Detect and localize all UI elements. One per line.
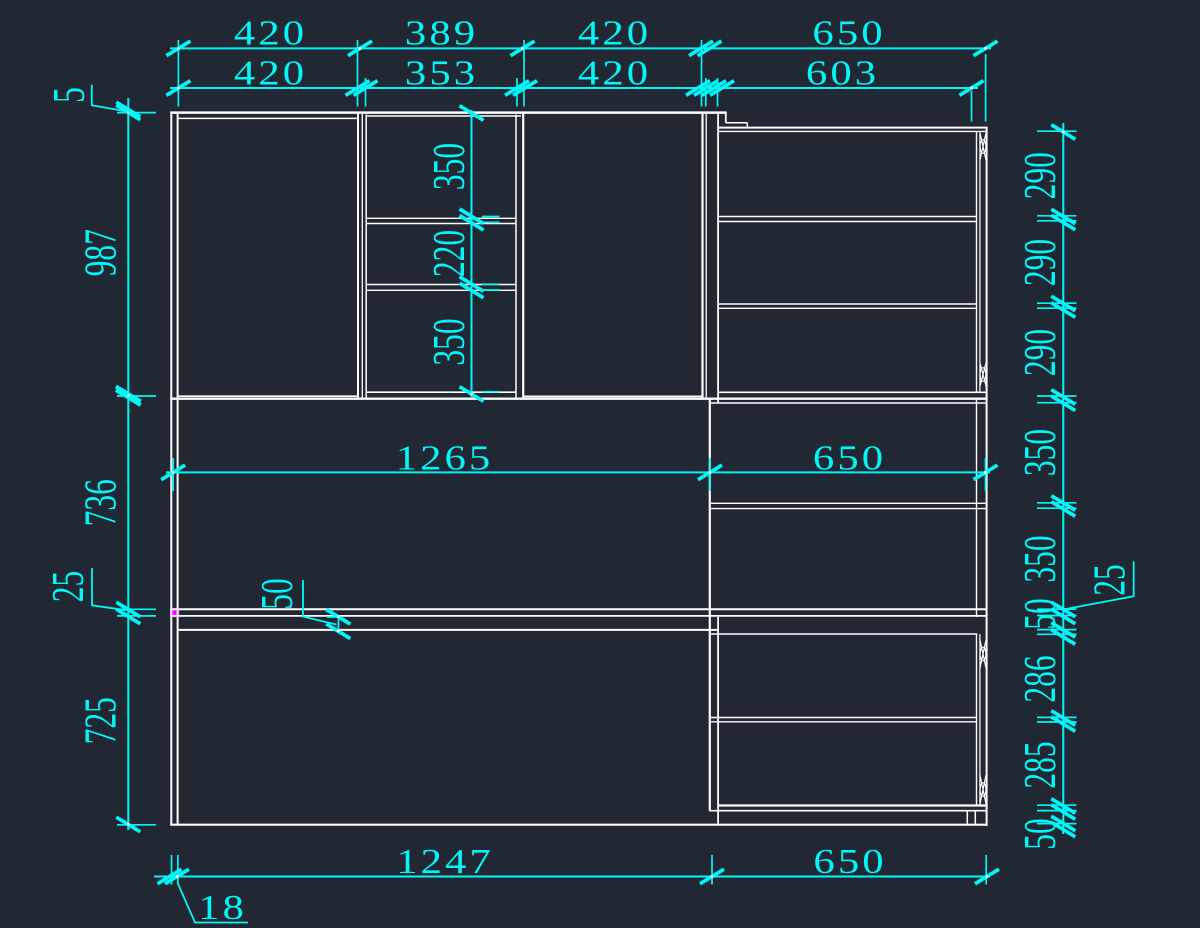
svg-text:350: 350 — [423, 318, 474, 365]
svg-text:50: 50 — [1014, 598, 1065, 629]
svg-text:420: 420 — [578, 14, 651, 53]
svg-text:285: 285 — [1014, 741, 1065, 788]
svg-text:389: 389 — [405, 14, 478, 53]
svg-text:290: 290 — [1014, 329, 1065, 376]
svg-text:650: 650 — [813, 842, 886, 881]
svg-text:50: 50 — [251, 578, 302, 609]
svg-text:286: 286 — [1014, 655, 1065, 702]
svg-text:736: 736 — [75, 479, 126, 526]
svg-text:650: 650 — [813, 439, 886, 478]
svg-text:220: 220 — [423, 230, 474, 277]
svg-text:353: 353 — [405, 54, 478, 93]
svg-text:290: 290 — [1014, 152, 1065, 199]
svg-text:50: 50 — [1014, 818, 1065, 849]
svg-text:987: 987 — [75, 229, 126, 276]
svg-text:25: 25 — [42, 571, 93, 602]
svg-text:1265: 1265 — [396, 439, 494, 478]
svg-text:290: 290 — [1014, 239, 1065, 286]
svg-text:350: 350 — [1014, 429, 1065, 476]
svg-text:25: 25 — [1084, 564, 1135, 595]
svg-text:650: 650 — [812, 14, 885, 53]
svg-text:603: 603 — [806, 54, 879, 93]
svg-text:420: 420 — [234, 54, 307, 93]
svg-text:725: 725 — [75, 697, 126, 744]
svg-text:18: 18 — [198, 889, 247, 928]
svg-text:350: 350 — [1014, 535, 1065, 582]
svg-text:420: 420 — [234, 14, 307, 53]
svg-text:350: 350 — [423, 143, 474, 190]
svg-text:1247: 1247 — [396, 842, 494, 881]
svg-text:420: 420 — [578, 54, 651, 93]
svg-text:5: 5 — [43, 87, 94, 103]
